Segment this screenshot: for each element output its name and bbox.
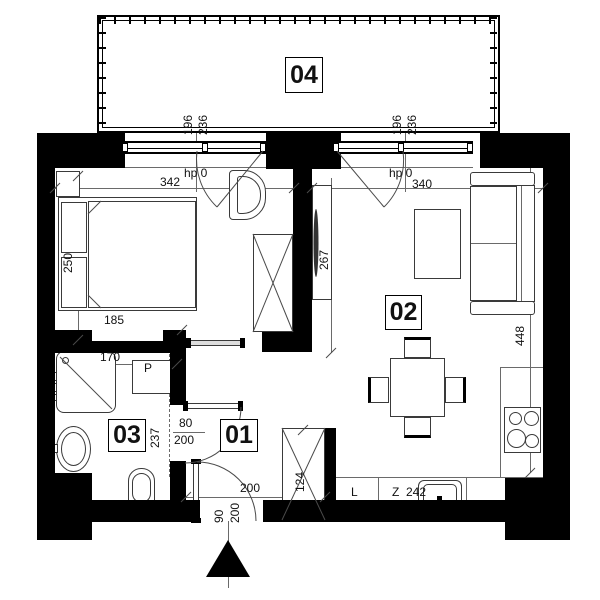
dim-bath-width: 170 (100, 351, 120, 364)
bathroom-sink-basin (61, 432, 86, 466)
room-number: 03 (113, 421, 141, 450)
kitchen-sink-letter: Z (392, 486, 399, 499)
burner-icon (509, 412, 522, 425)
dim-window-right-height: 236 (406, 115, 419, 135)
coffee-table-symbol (414, 209, 461, 279)
balcony-window-left (125, 141, 266, 154)
tv-cabinet-symbol (312, 185, 332, 300)
counter-divider-2 (466, 477, 467, 502)
dining-table-symbol (390, 358, 445, 417)
shower-drain-icon (62, 357, 69, 364)
railing-posts-top (99, 17, 498, 24)
window-frame-mark (398, 143, 404, 152)
counter-divider-1 (378, 477, 379, 502)
room-label-hall: 01 (220, 419, 258, 452)
dim-kitchen-run: 242 (406, 486, 426, 499)
sofa-armrest-symbol (470, 301, 535, 315)
wall-bottom-left-corner (37, 473, 92, 540)
balcony-window-right (336, 141, 473, 154)
wall-bottom-right (263, 500, 570, 522)
dim-living-width: 340 (412, 178, 432, 191)
dim-window-right-width: 196 (391, 115, 404, 135)
chair-symbol (404, 337, 431, 358)
room-label-balcony: 04 (285, 57, 323, 93)
entry-axis-line (228, 521, 229, 588)
dim-bed-length: 250 (62, 253, 75, 273)
dim-hall-width: 200 (240, 482, 260, 495)
dim-bedroom-width: 342 (160, 176, 180, 189)
room-number: 02 (390, 298, 418, 327)
wall-bathroom-east-lower (170, 461, 186, 521)
dim-window-left-width: 196 (182, 115, 195, 135)
wall-hall-wardrobe (325, 428, 336, 521)
bedroom-wardrobe-symbol (253, 234, 293, 332)
window-frame-mark (202, 143, 208, 152)
dim-tv-wall: 267 (318, 250, 331, 270)
window-glazing-line (125, 148, 266, 149)
wall-niche (92, 330, 163, 341)
railing-posts-left (99, 17, 106, 131)
bedroom-door-leaf (188, 340, 242, 346)
door-leaf-cap (238, 401, 243, 411)
dim-sill-height-left: hp 0 (184, 167, 207, 180)
burner-icon (524, 411, 539, 426)
burner-icon (507, 429, 526, 448)
room-number: 04 (290, 61, 318, 90)
chair-symbol (445, 377, 466, 403)
fridge-letter: L (351, 486, 358, 499)
window-frame-mark (260, 143, 266, 152)
chair-symbol (404, 417, 431, 438)
wall-right (543, 168, 570, 508)
bedside-cabinet-symbol (56, 171, 80, 197)
wall-bathroom-east-upper (170, 353, 186, 405)
dim-hall-wardrobe: 124 (294, 472, 307, 492)
window-frame-mark (333, 143, 339, 152)
dim-living-depth: 448 (514, 326, 527, 346)
pillow-symbol (61, 202, 87, 253)
floor-plan: 04 02 03 01 342 hp 0 340 hp 0 185 170 80… (0, 0, 600, 600)
counter-top-edge (500, 367, 543, 368)
sofa-armrest-symbol (470, 172, 535, 186)
dim-bath-door-height: 200 (174, 434, 194, 447)
window-frame-mark (122, 143, 128, 152)
wall-partition-bedroom-living (293, 169, 312, 352)
room-label-living: 02 (385, 295, 422, 330)
sofa-cushion-divider (471, 243, 516, 244)
dim-entry-door-height: 200 (229, 503, 242, 523)
window-frame-mark (467, 143, 473, 152)
chair-symbol (368, 377, 389, 403)
dim-bath-depth: 237 (149, 428, 162, 448)
counter-right-edge (500, 367, 501, 477)
wall-window-pier (266, 133, 341, 169)
mattress-symbol (88, 201, 196, 308)
railing-posts-right (490, 17, 497, 131)
wall-top-right-corner (480, 133, 570, 168)
washing-machine-letter: P (144, 362, 152, 375)
dim-bed-width: 185 (104, 314, 124, 327)
window-glazing-line (336, 148, 473, 149)
dim-bath-door-width: 80 (179, 417, 192, 430)
dim-sill-height-right: hp 0 (389, 167, 412, 180)
sofa-back-symbol (516, 185, 535, 302)
burner-icon (525, 434, 539, 448)
sofa-back-line (521, 186, 522, 301)
door-leaf-cap (186, 338, 191, 348)
balcony-door-leaf-line (337, 151, 384, 207)
toilet-bowl-symbol (132, 473, 151, 503)
door-leaf-cap (191, 459, 201, 464)
wall-top-left (37, 133, 125, 168)
wall-partition-foot (262, 332, 308, 352)
room-number: 01 (225, 421, 253, 450)
dim-window-left-height: 236 (197, 115, 210, 135)
door-leaf-cap (240, 338, 245, 348)
dim-entry-door-width: 90 (213, 510, 226, 523)
bathroom-door-leaf (185, 403, 241, 409)
room-label-bath: 03 (108, 419, 146, 452)
